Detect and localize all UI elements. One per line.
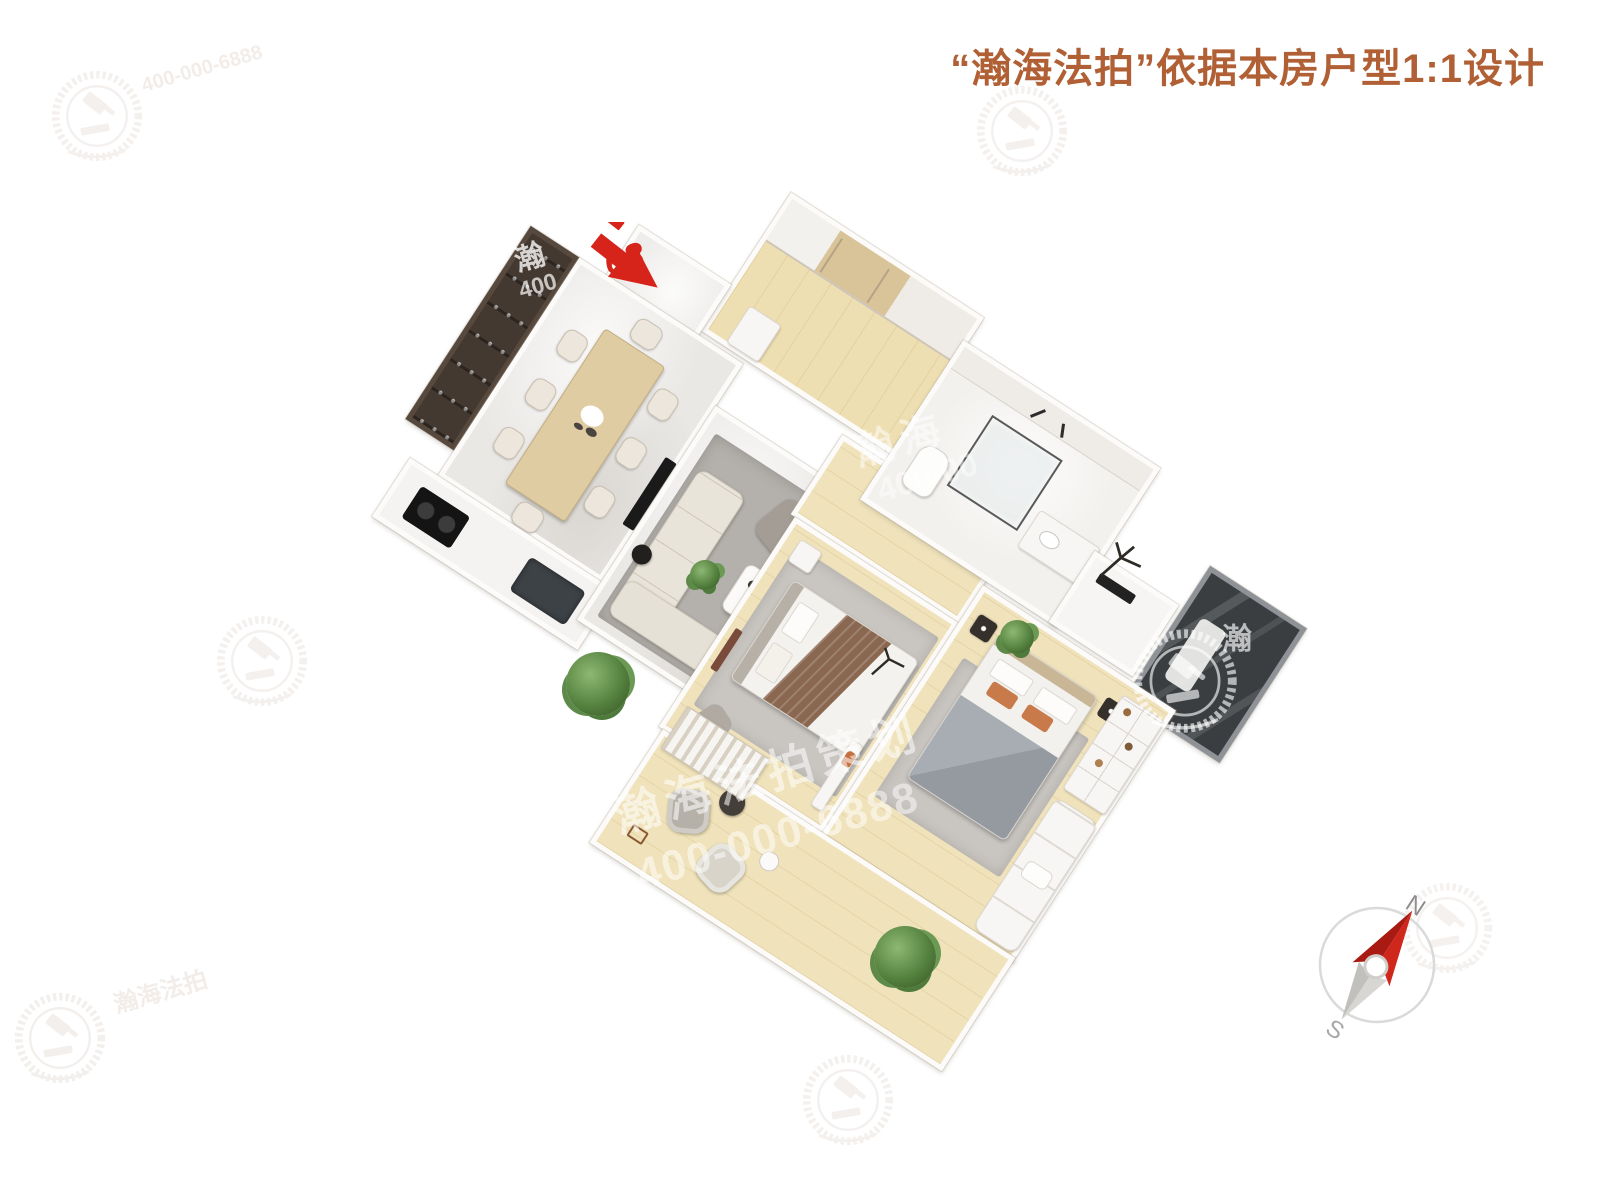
sofa-cushion — [1019, 859, 1055, 892]
watermark-ghost-brand: 瀚海法拍 — [109, 959, 211, 1019]
page-title: “瀚海法拍”依据本房户型1:1设计 — [950, 36, 1545, 94]
dry-branch-decor — [866, 644, 910, 682]
compass-south-label: S — [1321, 1014, 1349, 1045]
shelf-item — [1093, 758, 1104, 769]
potted-plant — [1000, 620, 1034, 654]
potted-plant — [566, 652, 630, 716]
floor-plan — [262, 60, 1387, 1120]
compass: N S — [1282, 870, 1472, 1060]
watermark-balcony-char: 瀚 — [1222, 614, 1252, 658]
kitchen-sink — [509, 556, 586, 625]
dry-branch-decor — [1096, 538, 1148, 582]
potted-plant — [690, 560, 720, 590]
poster: 400-000-6888 瀚海法拍 “瀚海法拍”依据本房户型1:1设计 — [0, 0, 1600, 1200]
sink-basin — [1036, 527, 1063, 552]
shelf-item — [1123, 741, 1134, 752]
watermark-gavel-emblem — [800, 1052, 896, 1148]
watermark-gavel-emblem — [12, 990, 108, 1086]
table-centerpiece — [577, 401, 608, 431]
watermark-ghost-phone: 400-000-6888 — [139, 41, 265, 97]
watermark-gavel-emblem — [974, 83, 1070, 179]
watermark-gavel-emblem — [49, 68, 145, 164]
wardrobe-cabinets — [765, 199, 977, 361]
shoe-cabinet — [726, 305, 782, 363]
gas-cooktop — [401, 486, 470, 549]
potted-plant — [874, 926, 936, 988]
